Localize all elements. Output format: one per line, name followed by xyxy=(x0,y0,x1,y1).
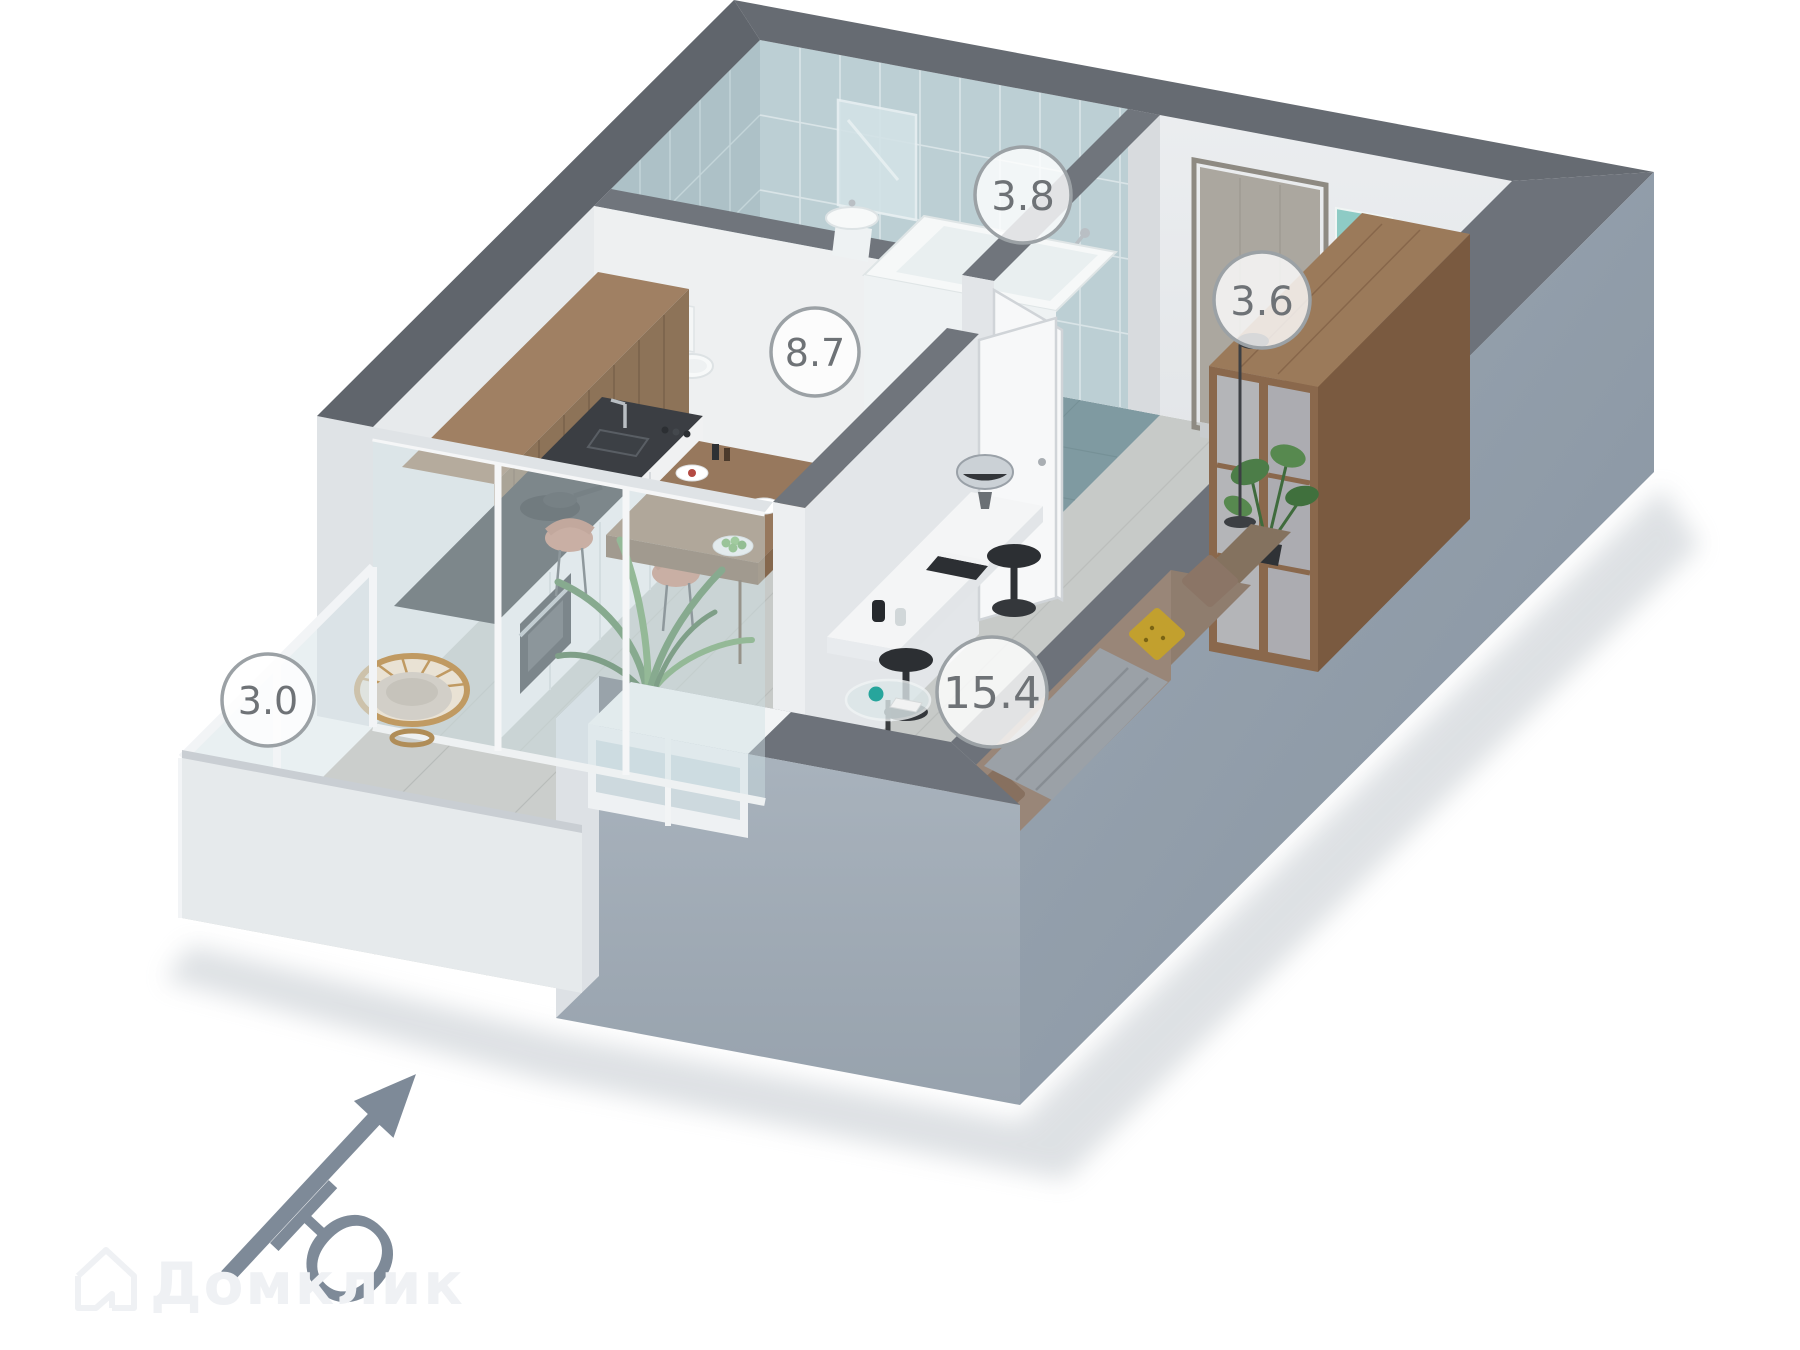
bottle xyxy=(712,444,719,460)
teal-cup xyxy=(869,687,884,702)
area-value-hallway: 3.6 xyxy=(1230,279,1294,325)
watermark: Домклик xyxy=(78,1250,465,1318)
bottle xyxy=(724,448,730,461)
sink-faucet xyxy=(849,200,856,207)
area-value-living-room: 15.4 xyxy=(943,668,1041,719)
area-label-bathroom: 3.8 xyxy=(975,147,1071,243)
area-value-balcony: 3.0 xyxy=(238,679,298,723)
area-label-hallway: 3.6 xyxy=(1214,252,1310,348)
wardrobe-door-glass xyxy=(1268,385,1310,660)
watermark-text: Домклик xyxy=(150,1250,465,1318)
area-value-bathroom: 3.8 xyxy=(991,174,1055,220)
floor-plan-render: Way xyxy=(0,0,1800,1350)
area-label-kitchen: 8.7 xyxy=(771,308,859,396)
area-label-balcony: 3.0 xyxy=(222,654,314,746)
area-label-living-room: 15.4 xyxy=(937,637,1047,747)
area-value-kitchen: 8.7 xyxy=(785,331,845,375)
house-logo-icon xyxy=(78,1250,134,1308)
floor-plan-page: Way xyxy=(0,0,1800,1350)
partition-joint xyxy=(1128,109,1160,415)
